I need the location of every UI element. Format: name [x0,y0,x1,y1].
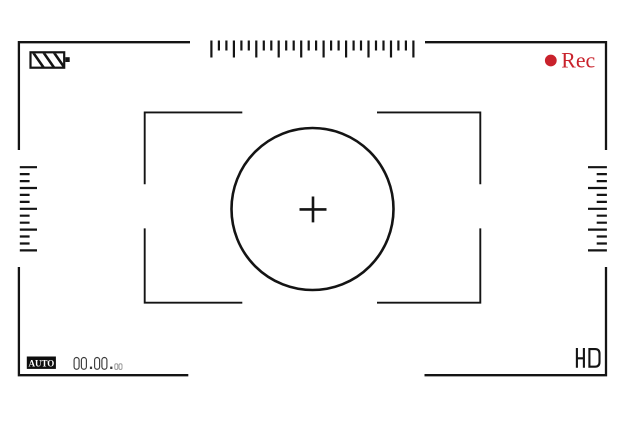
svg-text:Rec: Rec [561,49,595,73]
svg-text:AUTO: AUTO [28,358,54,368]
